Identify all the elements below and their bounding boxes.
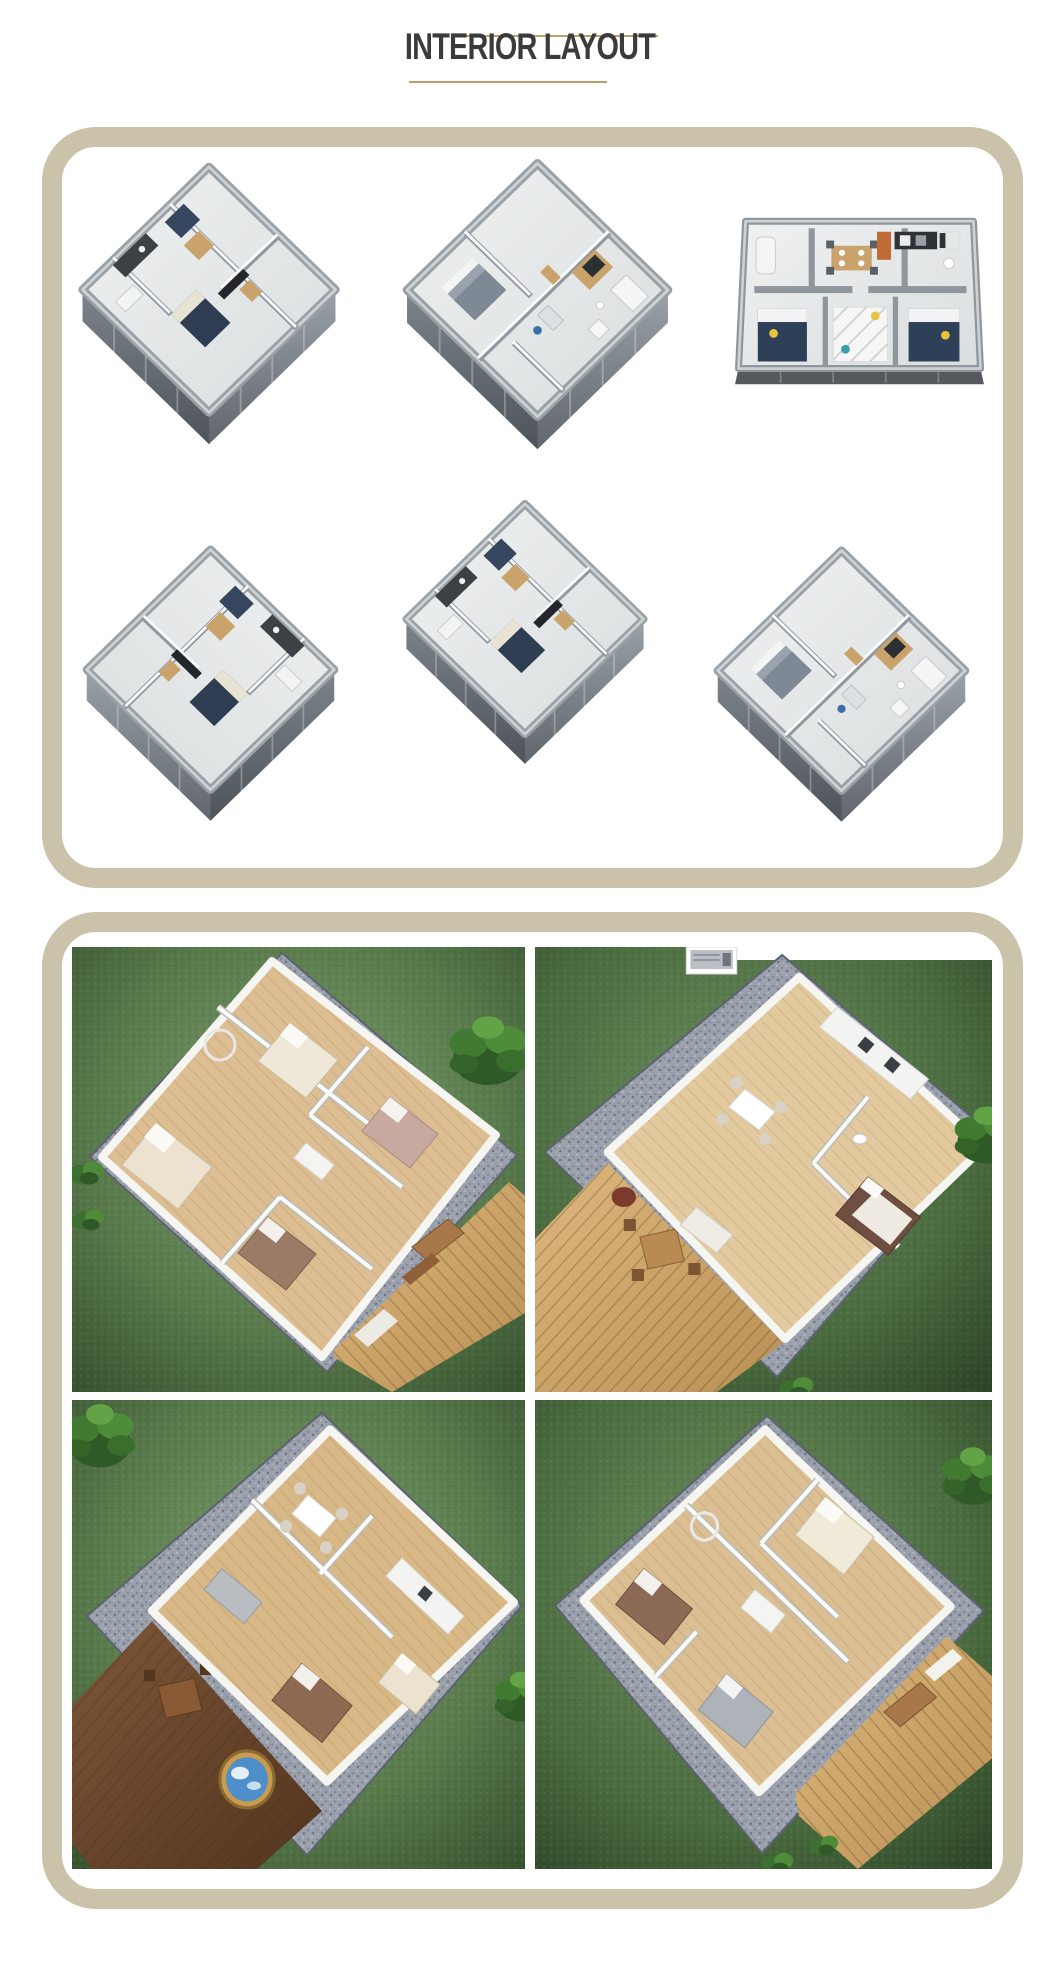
ac-unit-sticker [686,947,736,974]
exterior-render-1 [72,947,525,1392]
dining-table [831,246,871,271]
hot-tub [220,1751,274,1808]
bed-right [909,309,960,362]
exterior-render-3 [72,1400,525,1869]
exterior-renders-panel [42,912,1023,1909]
living-rug [833,307,887,361]
title-underline [409,81,607,83]
cabinet [877,232,891,260]
exterior-render-2 [535,947,992,1392]
floor-plan-render-6 [705,535,978,850]
toilet [944,258,955,269]
floor-plan-render-2 [380,148,695,478]
exterior-render-4 [535,1400,992,1869]
page-title: INTERIOR LAYOUT [117,26,944,68]
bed-left [758,309,807,362]
floor-plans-panel [42,127,1023,888]
floor-plan-render-3 [728,205,991,390]
floor-plan-render-4 [68,535,353,848]
bathtub [756,237,775,274]
floor-plans-grid [62,147,1003,868]
exterior-renders-grid [62,932,1003,1889]
red-plant [612,1187,636,1207]
floor-plan-render-5 [393,490,657,790]
toilet [853,1134,867,1144]
floor-plan-render-1 [68,152,350,472]
page: INTERIOR LAYOUT [0,0,1060,1968]
